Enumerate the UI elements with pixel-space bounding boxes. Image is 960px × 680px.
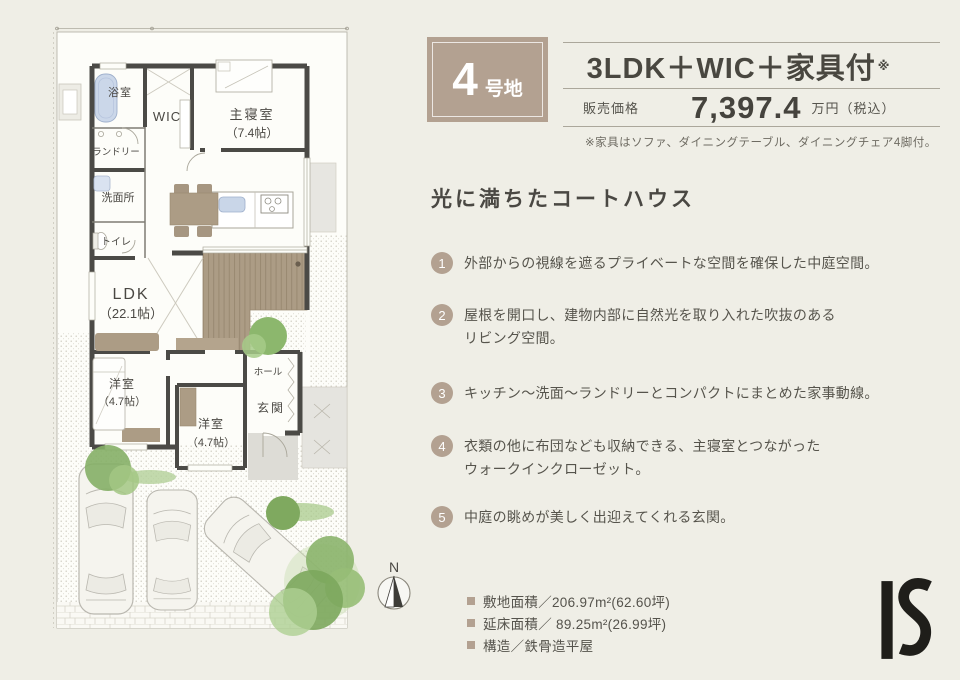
lot-number: 4: [452, 37, 478, 122]
floor-plan: N 浴室 WIC 主寝室 （7.4帖） ランドリー 洗面所 トイレ LDK （2…: [0, 0, 430, 680]
price-label: 販売価格: [583, 98, 639, 117]
feature-line: リビング空間。: [464, 327, 836, 350]
price-row: 販売価格 7,397.4 万円（税込）: [563, 89, 940, 127]
feature-number-badge: 4: [431, 435, 453, 457]
room-label-bath: 浴室: [108, 85, 132, 99]
price-unit: 万円（税込）: [811, 98, 895, 117]
feature-item-1: 1 外部からの視線を遮るプライベートな空間を確保した中庭空間。: [431, 252, 879, 275]
feature-text: 外部からの視線を遮るプライベートな空間を確保した中庭空間。: [464, 252, 879, 275]
furniture-note: ※家具はソファ、ダイニングテーブル、ダイニングチェア4脚付。: [563, 134, 940, 150]
feature-line: 外部からの視線を遮るプライベートな空間を確保した中庭空間。: [464, 252, 879, 275]
room-label-west1: 洋室: [109, 376, 135, 391]
room-label-hall: ホール: [254, 367, 283, 378]
spec-row-structure: 構造／鉄骨造平屋: [467, 634, 670, 656]
room-label-west1-size: （4.7帖）: [98, 395, 146, 408]
feature-line: ウォークインクローゼット。: [464, 458, 821, 481]
feature-number-badge: 2: [431, 304, 453, 326]
room-label-master-size: （7.4帖）: [226, 125, 279, 140]
feature-number-badge: 3: [431, 382, 453, 404]
side-yard-unit: [309, 163, 336, 232]
feature-text: 中庭の眺めが美しく出迎えてくれる玄関。: [464, 506, 735, 529]
layout-title: 3LDK＋WIC＋家具付※: [563, 42, 940, 89]
feature-number-badge: 1: [431, 252, 453, 274]
room-label-laundry: ランドリー: [92, 147, 140, 158]
room-label-west2: 洋室: [198, 416, 224, 431]
feature-line: キッチン～洗面～ランドリーとコンパクトにまとめた家事動線。: [464, 382, 879, 405]
feature-text: 衣類の他に布団なども収納できる、主寝室とつながった ウォークインクローゼット。: [464, 435, 821, 481]
feature-line: 衣類の他に布団なども収納できる、主寝室とつながった: [464, 435, 821, 458]
square-bullet-icon: [467, 619, 475, 627]
feature-line: 中庭の眺めが美しく出迎えてくれる玄関。: [464, 506, 735, 529]
spec-list: 敷地面積／206.97m²(62.60坪) 延床面積／ 89.25m²(26.9…: [467, 590, 670, 656]
entry-porch: [302, 387, 347, 468]
concept-title: 光に満ちたコートハウス: [431, 183, 695, 213]
room-label-toilet: トイレ: [101, 237, 131, 248]
room-label-wic: WIC: [153, 109, 181, 124]
layout-note-mark: ※: [878, 60, 891, 72]
feature-text: キッチン～洗面～ランドリーとコンパクトにまとめた家事動線。: [464, 382, 879, 405]
flyer-panel: N 浴室 WIC 主寝室 （7.4帖） ランドリー 洗面所 トイレ LDK （2…: [0, 0, 960, 680]
spec-text: 延床面積／ 89.25m²(26.99坪): [483, 613, 666, 633]
room-label-ldk-size: （22.1帖）: [99, 306, 163, 321]
compass-icon: N: [378, 559, 410, 609]
feature-item-2: 2 屋根を開口し、建物内部に自然光を取り入れた吹抜のある リビング空間。: [431, 304, 836, 350]
spec-row-floor-area: 延床面積／ 89.25m²(26.99坪): [467, 612, 670, 634]
feature-item-4: 4 衣類の他に布団なども収納できる、主寝室とつながった ウォークインクローゼット…: [431, 435, 821, 481]
room-label-master: 主寝室: [229, 107, 274, 122]
compass-north-label: N: [389, 559, 399, 575]
spec-row-site-area: 敷地面積／206.97m²(62.60坪): [467, 590, 670, 612]
spec-text: 構造／鉄骨造平屋: [483, 635, 593, 655]
room-label-washroom: 洗面所: [102, 191, 135, 204]
feature-line: 屋根を開口し、建物内部に自然光を取り入れた吹抜のある: [464, 304, 836, 327]
room-label-ldk: LDK: [112, 286, 149, 303]
square-bullet-icon: [467, 641, 475, 649]
feature-text: 屋根を開口し、建物内部に自然光を取り入れた吹抜のある リビング空間。: [464, 304, 836, 350]
brand-logo-IS: [878, 577, 936, 663]
exterior-unit: [59, 84, 81, 120]
feature-number-badge: 5: [431, 506, 453, 528]
header-block: 3LDK＋WIC＋家具付※ 販売価格 7,397.4 万円（税込） ※家具はソフ…: [563, 42, 940, 150]
square-bullet-icon: [467, 597, 475, 605]
room-label-entrance: 玄関: [257, 400, 285, 415]
feature-item-3: 3 キッチン～洗面～ランドリーとコンパクトにまとめた家事動線。: [431, 382, 879, 405]
room-label-west2-size: （4.7帖）: [187, 436, 235, 449]
price-value: 7,397.4: [691, 90, 801, 126]
lot-number-badge: 4 号地: [427, 37, 548, 122]
spec-text: 敷地面積／206.97m²(62.60坪): [483, 591, 670, 611]
feature-item-5: 5 中庭の眺めが美しく出迎えてくれる玄関。: [431, 506, 735, 529]
lot-number-suffix: 号地: [485, 74, 523, 101]
layout-title-text: 3LDK＋WIC＋家具付: [587, 45, 876, 87]
